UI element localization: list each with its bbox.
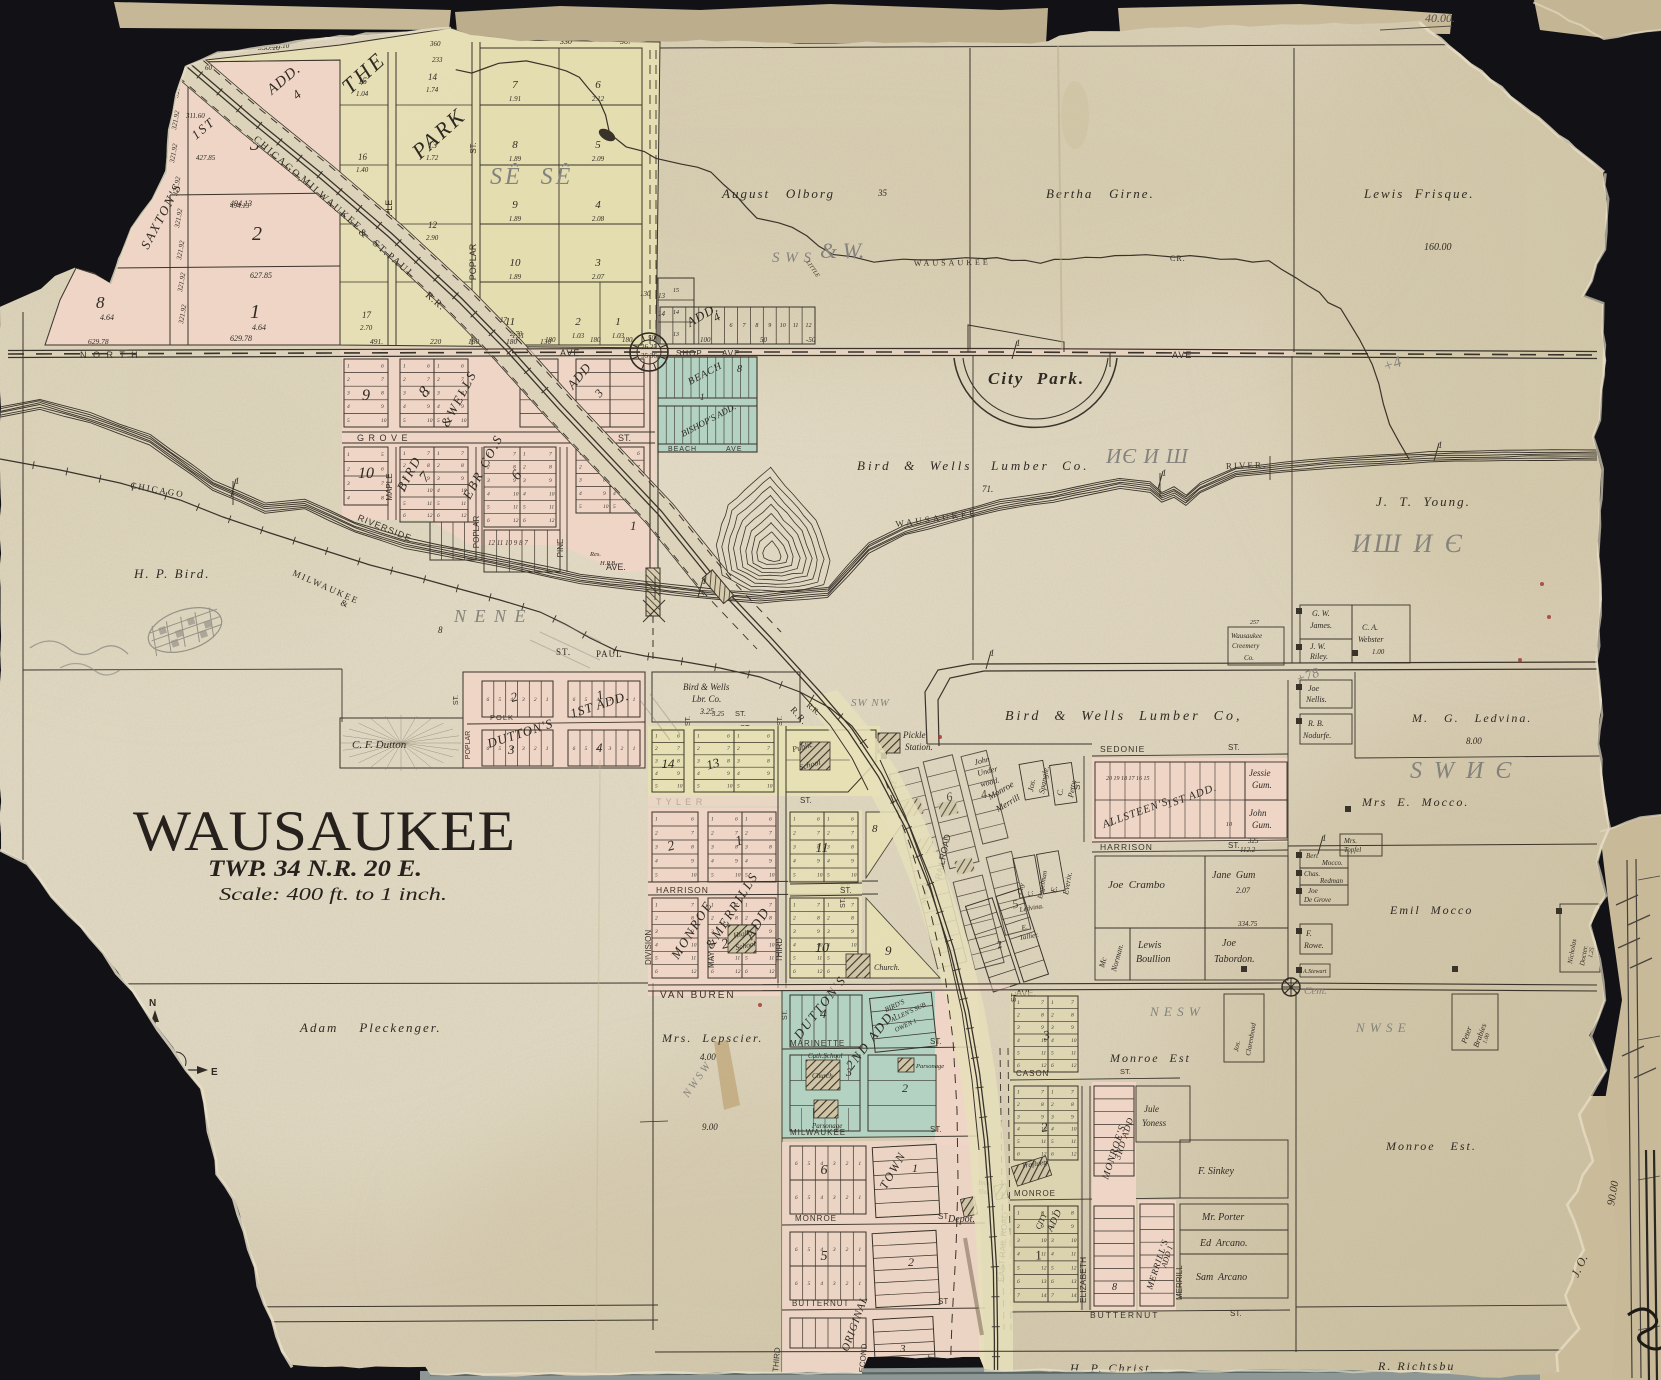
svg-text:Jane Gum: Jane Gum [1212,870,1255,881]
svg-text:3: 3 [346,481,350,487]
svg-text:9: 9 [727,771,730,777]
svg-text:12: 12 [735,969,741,975]
svg-text:ST.: ST. [840,898,847,908]
svg-text:4: 4 [595,199,601,211]
svg-text:1: 1 [655,734,658,740]
svg-text:4.64: 4.64 [252,323,266,332]
svg-text:2: 2 [745,831,748,837]
svg-text:Mr. Porter: Mr. Porter [1201,1212,1244,1223]
svg-text:3: 3 [436,476,440,482]
svg-text:2: 2 [1017,1013,1020,1019]
svg-text:6: 6 [711,969,714,975]
svg-text:Mrs. Lepscier.: Mrs. Lepscier. [661,1031,763,1045]
svg-text:14: 14 [1041,1292,1047,1299]
svg-text:MILWAUKEE: MILWAUKEE [790,1128,846,1137]
svg-text:4: 4 [1017,1037,1020,1044]
svg-text:3: 3 [899,1343,906,1355]
svg-text:Cem.: Cem. [1304,985,1327,997]
svg-text:12: 12 [549,518,555,524]
svg-text:6: 6 [655,969,658,975]
svg-text:2: 2 [534,746,537,752]
svg-text:Joe: Joe [1308,684,1320,693]
svg-text:1: 1 [858,1195,861,1201]
svg-text:9: 9 [768,323,771,329]
svg-text:2: 2 [737,746,740,752]
svg-text:9: 9 [1071,1025,1074,1031]
svg-text:6: 6 [381,467,384,473]
svg-text:1: 1 [633,697,636,703]
svg-text:2: 2 [575,316,581,328]
svg-text:12: 12 [1071,1151,1077,1157]
svg-text:N O R T H: N O R T H [80,350,140,360]
svg-text:8: 8 [1071,1211,1074,1217]
svg-text:12 11 10 9 8 7: 12 11 10 9 8 7 [488,539,528,547]
svg-text:10: 10 [735,873,741,879]
svg-text:1: 1 [615,316,621,328]
svg-text:9: 9 [512,199,518,211]
svg-text:7: 7 [461,451,464,457]
svg-text:3: 3 [1016,1025,1020,1031]
svg-text:POPLAR: POPLAR [468,243,478,280]
svg-text:2: 2 [579,464,582,470]
svg-text:8: 8 [96,293,105,312]
svg-text:N: N [149,998,156,1009]
svg-text:11: 11 [1041,1139,1046,1145]
svg-text:1: 1 [1051,1090,1054,1096]
svg-text:6: 6 [851,817,854,823]
svg-text:2: 2 [347,377,350,383]
svg-text:9: 9 [691,859,694,865]
svg-text:1: 1 [403,451,406,457]
svg-text:180: 180 [622,336,633,344]
svg-text:CR.: CR. [1170,254,1186,263]
svg-text:20 19 18 17 16 15: 20 19 18 17 16 15 [1106,776,1150,782]
svg-text:5: 5 [737,783,740,789]
svg-text:1: 1 [912,1161,918,1175]
svg-text:10: 10 [510,257,522,269]
svg-text:5: 5 [827,873,830,879]
svg-text:Yoness: Yoness [1142,1118,1167,1128]
svg-text:Church.: Church. [874,963,900,972]
svg-text:2: 2 [793,916,796,922]
svg-text:Chas.: Chas. [1304,870,1320,878]
svg-text:M. G. Ledvina.: M. G. Ledvina. [1411,711,1532,725]
svg-text:17: 17 [500,316,508,324]
svg-text:5: 5 [1051,1051,1054,1057]
svg-text:MAY: MAY [707,951,716,968]
svg-text:3.25: 3.25 [711,710,725,718]
svg-text:Creemery: Creemery [1232,642,1260,650]
svg-text:WAUSAUKEE: WAUSAUKEE [133,800,515,863]
svg-text:7: 7 [549,451,552,457]
svg-text:SEDONIE: SEDONIE [1100,744,1145,754]
svg-text:Scale: 400 ft. to 1 inch.: Scale: 400 ft. to 1 inch. [219,884,447,904]
svg-text:7: 7 [1071,1090,1074,1096]
svg-text:3: 3 [736,759,740,765]
svg-text:5: 5 [437,501,440,507]
svg-text:11: 11 [769,956,774,962]
svg-text:13: 13 [1041,1279,1047,1285]
svg-text:6: 6 [769,817,772,823]
svg-text:6: 6 [745,969,748,975]
svg-text:8: 8 [851,916,854,922]
svg-text:8: 8 [872,823,878,835]
svg-text:1: 1 [1016,338,1021,348]
svg-text:11: 11 [427,501,432,507]
svg-text:ST.: ST. [453,695,460,705]
svg-text:491.: 491. [370,337,383,346]
svg-text:5: 5 [595,139,601,151]
svg-text:4: 4 [820,1280,823,1287]
svg-text:2: 2 [655,916,658,922]
svg-text:1: 1 [793,817,796,823]
svg-text:1: 1 [347,452,350,458]
svg-text:2: 2 [745,916,748,922]
svg-text:9: 9 [1071,1224,1074,1230]
svg-text:4: 4 [655,770,658,777]
svg-text:2: 2 [403,377,406,383]
svg-text:3: 3 [521,746,525,752]
svg-text:6: 6 [827,969,830,975]
svg-text:7: 7 [512,79,518,91]
svg-text:3: 3 [832,1281,836,1287]
svg-text:11: 11 [1071,1139,1076,1145]
svg-text:8: 8 [851,845,854,851]
svg-text:10: 10 [513,491,519,497]
svg-text:E.: E. [1049,885,1059,894]
svg-text:9.00: 9.00 [702,1122,718,1132]
svg-text:2: 2 [655,746,658,752]
svg-text:ST.: ST. [1011,992,1018,1002]
svg-text:14: 14 [658,310,666,318]
svg-text:12: 12 [1041,1265,1047,1271]
svg-text:1.89: 1.89 [509,273,522,281]
svg-text:427.85: 427.85 [196,154,216,162]
svg-text:1: 1 [1438,440,1443,450]
svg-text:9: 9 [767,771,770,777]
svg-text:Lewis Frisque.: Lewis Frisque. [1363,186,1475,201]
svg-text:6: 6 [1051,1279,1054,1285]
svg-text:Ed Arcano.: Ed Arcano. [1199,1238,1248,1249]
svg-text:9: 9 [885,943,892,958]
svg-text:6: 6 [381,363,384,369]
svg-text:Wausaukee: Wausaukee [1231,632,1262,640]
svg-text:3: 3 [1050,1025,1054,1031]
svg-text:10: 10 [677,783,683,789]
svg-text:40.00.: 40.00. [1425,11,1455,25]
svg-text:ST.: ST. [930,1125,942,1134]
svg-text:& W.: & W. [820,238,864,263]
svg-text:Riley.: Riley. [1309,652,1328,661]
svg-text:Jessie: Jessie [1249,768,1271,778]
svg-text:11: 11 [1071,1252,1076,1258]
svg-text:5: 5 [808,1281,811,1287]
svg-text:ST.: ST. [685,716,692,726]
svg-text:50: 50 [648,334,656,342]
svg-text:2: 2 [827,831,830,837]
svg-text:4: 4 [487,490,490,497]
svg-text:4: 4 [1051,1037,1054,1044]
svg-text:ИШ И Є: ИШ И Є [1351,529,1465,558]
svg-text:1: 1 [793,902,796,908]
svg-text:Church: Church [812,1072,833,1080]
svg-text:1: 1 [250,301,260,323]
svg-text:R. B.: R. B. [1307,719,1324,728]
svg-text:360: 360 [429,40,441,48]
svg-text:G R O V E: G R O V E [357,433,409,443]
svg-text:6: 6 [1051,1063,1054,1069]
svg-text:2.07: 2.07 [592,273,605,281]
svg-text:8: 8 [727,759,730,765]
svg-text:5: 5 [808,1195,811,1201]
svg-text:130: 130 [640,290,651,298]
svg-text:5: 5 [585,746,588,752]
svg-text:4: 4 [1051,1251,1054,1258]
svg-text:5: 5 [655,783,658,789]
svg-text:Jule: Jule [1144,1104,1159,1114]
svg-text:J. W.: J. W. [1310,642,1326,651]
svg-text:5: 5 [793,956,796,962]
svg-text:10: 10 [727,783,733,789]
svg-text:4: 4 [1017,1126,1020,1133]
svg-text:6: 6 [795,1161,798,1167]
svg-text:4: 4 [437,487,440,494]
svg-text:3: 3 [1050,1114,1054,1120]
svg-text:1: 1 [630,518,637,533]
svg-text:100: 100 [700,336,711,344]
svg-text:9: 9 [769,929,772,935]
svg-text:6: 6 [637,451,640,457]
svg-text:Rowe.: Rowe. [1303,941,1324,950]
svg-text:Emil Mocco: Emil Mocco [1389,903,1473,917]
svg-text:City Park.: City Park. [988,369,1085,388]
svg-text:4: 4 [403,403,406,410]
svg-text:ST.: ST. [782,1010,789,1020]
svg-text:9: 9 [735,859,738,865]
svg-text:4: 4 [347,403,350,410]
svg-text:WAUSAUKEE: WAUSAUKEE [914,258,991,268]
svg-text:2: 2 [534,697,537,703]
svg-text:9: 9 [851,929,854,935]
svg-text:ST.: ST. [800,796,812,805]
svg-text:2: 2 [347,467,350,473]
svg-text:11: 11 [691,956,696,962]
svg-text:2.70: 2.70 [360,324,373,332]
svg-text:3: 3 [346,391,350,397]
svg-text:10: 10 [769,873,775,879]
svg-text:10: 10 [1071,1127,1077,1133]
svg-text:9: 9 [817,929,820,935]
svg-text:6: 6 [677,734,680,740]
svg-text:2.08: 2.08 [592,215,605,223]
svg-text:8: 8 [769,845,772,851]
svg-text:6: 6 [795,1281,798,1287]
svg-text:5: 5 [1017,1139,1020,1145]
svg-text:6: 6 [691,817,694,823]
svg-text:8: 8 [427,463,430,469]
svg-text:AVE: AVE [726,446,743,453]
svg-text:2.90: 2.90 [426,234,439,242]
svg-text:1: 1 [827,817,830,823]
svg-text:6: 6 [793,969,796,975]
svg-text:Bird & Wells: Bird & Wells [683,682,730,692]
svg-text:VAN BUREN: VAN BUREN [660,990,736,1001]
svg-text:4: 4 [711,858,714,865]
svg-text:10: 10 [691,873,697,879]
svg-text:17: 17 [362,310,372,320]
svg-text:ELIZABETH: ELIZABETH [1078,1257,1088,1303]
svg-text:John: John [1249,808,1267,818]
svg-text:7: 7 [1051,1293,1054,1299]
svg-text:10: 10 [769,942,775,948]
svg-text:5: 5 [655,956,658,962]
svg-text:5: 5 [498,697,501,703]
svg-text:2: 2 [697,746,700,752]
svg-text:Sam Arcano: Sam Arcano [1196,1272,1247,1283]
svg-text:N E N E: N E N E [453,606,528,626]
svg-text:71.: 71. [982,484,993,494]
svg-text:11: 11 [793,323,799,329]
svg-text:1: 1 [697,734,700,740]
svg-text:ST: ST [938,1297,948,1306]
svg-text:233: 233 [432,56,443,64]
svg-text:10: 10 [1071,1038,1077,1044]
svg-text:9: 9 [769,859,772,865]
svg-text:10: 10 [851,942,857,948]
svg-text:12: 12 [769,969,775,975]
svg-text:4: 4 [655,858,658,865]
svg-text:10: 10 [549,491,555,497]
svg-text:130: 130 [540,337,552,346]
svg-text:5: 5 [487,505,490,511]
svg-text:1.91: 1.91 [509,95,521,103]
svg-text:7: 7 [381,377,384,383]
svg-text:1: 1 [546,746,549,752]
svg-text:5: 5 [1017,1265,1020,1271]
svg-text:13: 13 [1071,1279,1077,1285]
svg-text:F. Sinkey: F. Sinkey [1197,1166,1234,1177]
svg-text:11: 11 [461,501,466,507]
svg-text:11: 11 [816,841,829,856]
svg-text:6: 6 [1017,1151,1020,1157]
svg-text:2: 2 [846,1195,849,1201]
svg-text:50: 50 [760,336,768,344]
svg-text:12: 12 [806,323,812,329]
svg-text:2: 2 [846,1281,849,1287]
svg-text:1: 1 [1017,1211,1020,1217]
svg-text:8: 8 [767,759,770,765]
svg-text:5: 5 [403,418,406,424]
svg-text:A.Stewart: A.Stewart [1302,969,1327,975]
svg-text:Mocco.: Mocco. [1321,859,1343,867]
svg-text:N E S W: N E S W [1149,1004,1201,1019]
svg-text:1.89: 1.89 [509,215,522,223]
svg-text:Mrs.: Mrs. [1343,837,1357,845]
svg-text:10: 10 [427,488,433,494]
svg-text:3: 3 [594,257,601,269]
svg-text:3: 3 [654,759,658,765]
svg-text:160.00: 160.00 [1424,242,1452,253]
svg-text:TWP. 34 N.R. 20 E.: TWP. 34 N.R. 20 E. [208,856,422,881]
svg-text:3: 3 [826,929,830,935]
svg-text:4: 4 [579,490,582,497]
svg-text:2: 2 [793,831,796,837]
svg-text:60: 60 [205,64,213,72]
svg-text:Joe: Joe [1308,887,1318,895]
svg-text:12: 12 [691,969,697,975]
svg-text:POPLAR: POPLAR [465,731,472,759]
svg-text:7: 7 [427,451,430,457]
svg-text:1: 1 [235,476,240,486]
svg-text:3: 3 [578,478,582,484]
svg-text:2: 2 [711,831,714,837]
svg-text:8: 8 [381,391,384,397]
svg-text:10: 10 [603,504,609,510]
svg-text:3: 3 [1016,1114,1020,1120]
svg-text:12: 12 [427,513,433,519]
svg-text:E: E [211,1067,218,1078]
svg-text:Joe: Joe [1222,938,1236,949]
svg-text:6: 6 [437,513,440,519]
svg-text:14: 14 [662,756,676,771]
svg-text:2: 2 [621,746,624,752]
svg-text:DIVISION: DIVISION [644,930,653,965]
svg-text:6: 6 [461,363,464,369]
svg-text:35 36: 35 36 [641,352,657,360]
svg-text:ST.: ST. [1120,1067,1131,1076]
svg-text:4: 4 [347,495,350,502]
svg-text:5: 5 [1017,1051,1020,1057]
svg-text:11: 11 [1041,1051,1046,1057]
svg-text:1: 1 [1110,822,1113,828]
svg-text:10: 10 [780,323,786,329]
svg-text:Mrs E. Mocco.: Mrs E. Mocco. [1361,795,1469,809]
svg-text:7: 7 [381,481,384,487]
svg-text:6: 6 [573,697,576,703]
svg-text:1: 1 [702,576,707,586]
svg-text:H. P. Bird.: H. P. Bird. [133,566,211,581]
svg-text:10: 10 [1226,822,1232,828]
svg-text:8.00: 8.00 [1466,736,1482,746]
svg-text:6: 6 [595,79,601,91]
svg-text:ST.: ST. [618,433,631,443]
svg-text:1: 1 [700,392,705,402]
svg-text:10: 10 [815,941,829,956]
svg-text:627.85: 627.85 [250,271,272,280]
svg-text:Depot.: Depot. [947,1214,975,1225]
svg-text:Gum.: Gum. [1252,780,1272,790]
svg-text:6: 6 [573,746,576,752]
svg-text:6: 6 [487,518,490,524]
svg-text:12: 12 [1071,1265,1077,1271]
svg-text:10: 10 [461,418,467,424]
svg-text:1: 1 [858,1161,861,1167]
svg-text:C. A.: C. A. [1362,623,1378,632]
svg-text:3: 3 [792,929,796,935]
svg-text:13: 13 [658,292,666,300]
svg-text:Parsonage: Parsonage [915,1063,944,1070]
svg-text:BUTTERNUT: BUTTERNUT [1090,1310,1159,1320]
svg-text:2: 2 [711,916,714,922]
svg-text:MERRILL: MERRILL [1175,1265,1184,1300]
svg-text:3: 3 [696,759,700,765]
svg-text:12: 12 [428,220,438,230]
svg-text:7: 7 [427,377,430,383]
svg-text:5: 5 [821,1249,828,1264]
svg-text:14: 14 [428,72,438,82]
svg-text:1: 1 [403,363,406,369]
svg-text:1: 1 [655,902,658,908]
